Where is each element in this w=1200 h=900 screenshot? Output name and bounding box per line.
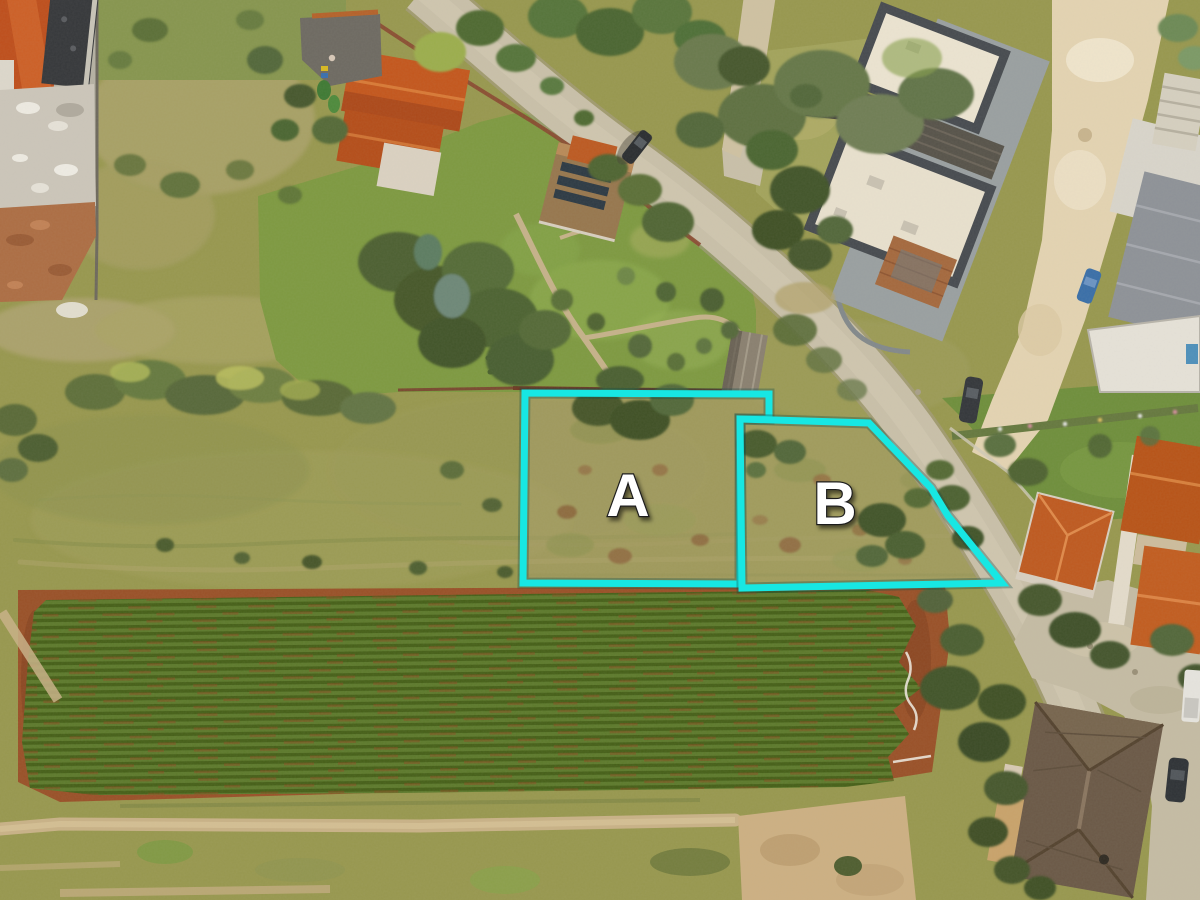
plot-a-label: A — [606, 462, 648, 529]
aerial-photo: A B — [0, 0, 1200, 900]
photo-grain — [0, 0, 1200, 900]
plot-b-label: B — [813, 470, 854, 537]
